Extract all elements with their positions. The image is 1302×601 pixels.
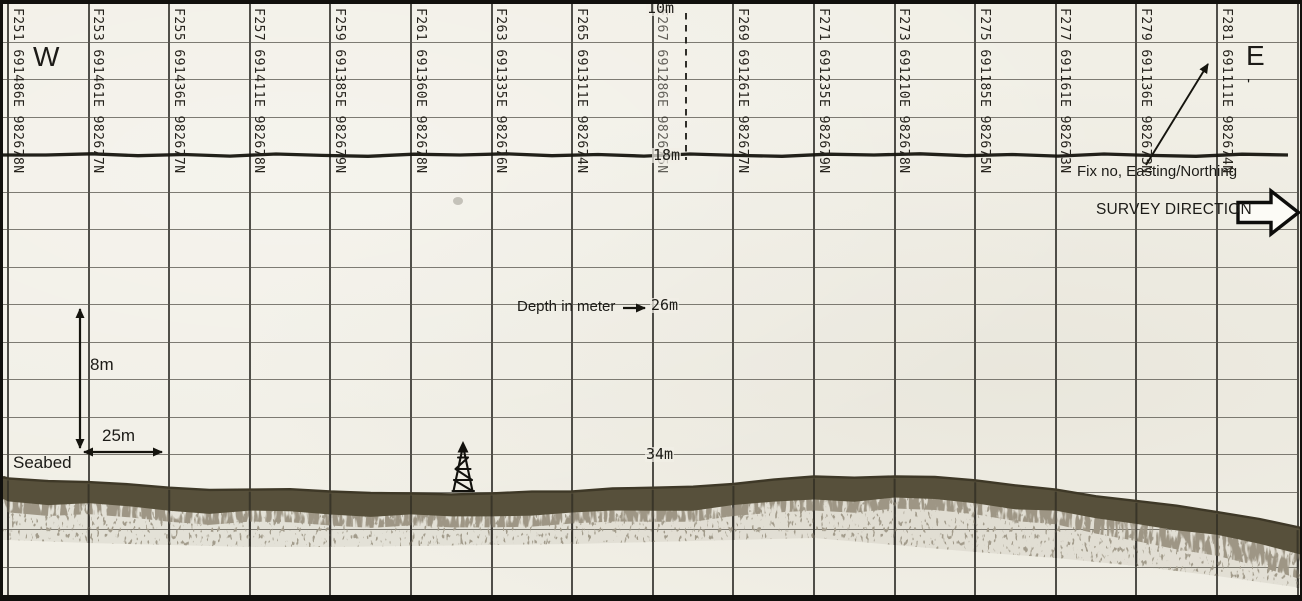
fix-label: F259 691385E 982679N [332, 8, 346, 174]
depth-mark: 26m [650, 298, 679, 313]
depth-mark: 34m [645, 447, 674, 462]
fix-label: F251 691486E 982678N [10, 8, 24, 174]
depth-note-label: Depth in meter [517, 299, 615, 314]
fix-label: F281 691111E 982674N [1219, 8, 1233, 174]
fix-label: F275 691185E 982675N [977, 8, 991, 174]
smudge-mark [453, 197, 463, 205]
echogram-paper: W E ' Depth in meter 8m 25m Seabed Fix n… [0, 0, 1302, 601]
fix-note-label: Fix no, Easting/Northing [1077, 164, 1237, 179]
seabed-trace [0, 477, 1302, 589]
fix-label: F271 691235E 982679N [816, 8, 830, 174]
fix-label: F255 691436E 982677N [171, 8, 185, 174]
seabed-label: Seabed [13, 454, 72, 471]
fix-note-arrow [1146, 64, 1208, 165]
fix-label: F279 691136E 982673N [1138, 8, 1152, 174]
left-border [0, 0, 3, 601]
compass-west-label: W [33, 43, 59, 71]
horizontal-scale-label: 25m [102, 427, 135, 444]
fix-label: F269 691261E 982677N [735, 8, 749, 174]
fix-label: F263 691335E 982676N [493, 8, 507, 174]
vertical-scale-label: 8m [90, 356, 114, 373]
depth-mark: 18m [652, 148, 681, 163]
fix-label: F253 691461E 982677N [90, 8, 104, 174]
surface-line [0, 154, 1288, 157]
stray-mark: ' [1247, 78, 1250, 94]
fix-label: F261 691360E 982678N [413, 8, 427, 174]
survey-direction-label: SURVEY DIRECTION [1096, 202, 1252, 218]
fix-label: F257 691411E 982678N [252, 8, 266, 174]
compass-east-label: E [1246, 42, 1265, 70]
top-border [0, 0, 1302, 4]
fix-label: F273 691210E 982678N [896, 8, 910, 174]
bottom-border [0, 595, 1302, 601]
platform-symbol [453, 441, 475, 491]
fix-label: F265 691311E 982674N [574, 8, 588, 174]
fix-label: F277 691161E 982673N [1058, 8, 1072, 174]
